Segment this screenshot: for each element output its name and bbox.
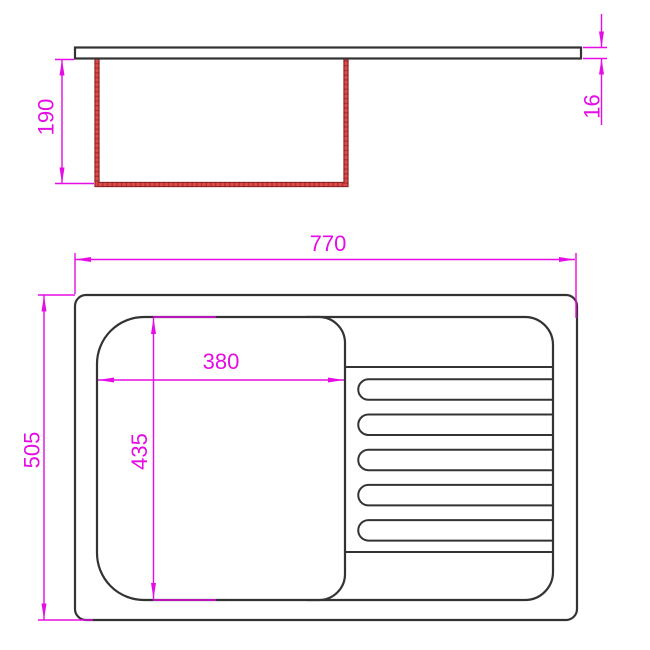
- dim-overall-width: [75, 253, 576, 318]
- sink-technical-drawing: 190 16 770 505 380 435: [0, 0, 650, 650]
- drainer-grooves: [358, 379, 552, 540]
- countertop-bar: [75, 48, 581, 59]
- drawing-canvas: 190 16 770 505 380 435: [0, 0, 650, 650]
- bowl-section-dark-edge: [97, 58, 346, 185]
- bowl-section-hatch-texture: [97, 58, 346, 185]
- drainer-groove: [358, 450, 552, 471]
- drainer-groove: [358, 415, 552, 436]
- dim-label-overall-depth: 505: [20, 432, 45, 469]
- dim-overall-depth: [38, 295, 93, 620]
- drainer-groove-boundaries: [346, 367, 553, 552]
- bowl-section-outline: [97, 58, 346, 185]
- dim-label-countertop-thickness: 16: [580, 94, 605, 118]
- dim-label-bowl-width: 380: [203, 349, 240, 374]
- bowl-section-red-core: [97, 58, 346, 185]
- dim-label-overall-width: 770: [310, 231, 347, 256]
- dim-bowl-depth: [55, 60, 94, 184]
- dim-label-bowl-depth: 190: [34, 99, 59, 136]
- drainer-groove: [358, 379, 552, 400]
- side-view: [75, 48, 581, 185]
- drainer-groove: [358, 520, 552, 541]
- drainer-groove: [358, 485, 552, 506]
- dim-label-bowl-length: 435: [127, 433, 152, 470]
- countertop-bar-rect: [75, 48, 581, 59]
